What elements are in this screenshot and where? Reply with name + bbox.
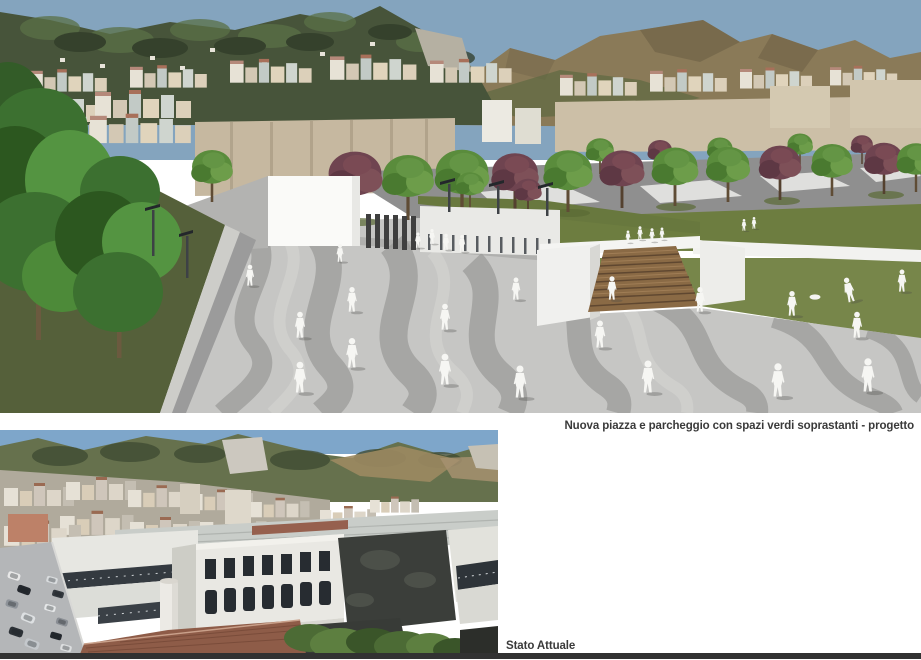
figure-progetto (0, 0, 921, 413)
photo-quarry (222, 437, 268, 474)
photo-dark-roof-building (338, 530, 456, 632)
caption-stato-attuale: Stato Attuale (506, 640, 575, 652)
stato-attuale-photo-image (0, 430, 498, 654)
progetto-render-image (0, 0, 921, 413)
figure-stato-attuale (0, 430, 498, 654)
page-divider-bar (0, 653, 921, 659)
render-white-building (268, 176, 360, 246)
caption-progetto: Nuova piazza e parcheggio con spazi verd… (564, 420, 914, 432)
document-page: Nuova piazza e parcheggio con spazi verd… (0, 0, 921, 660)
